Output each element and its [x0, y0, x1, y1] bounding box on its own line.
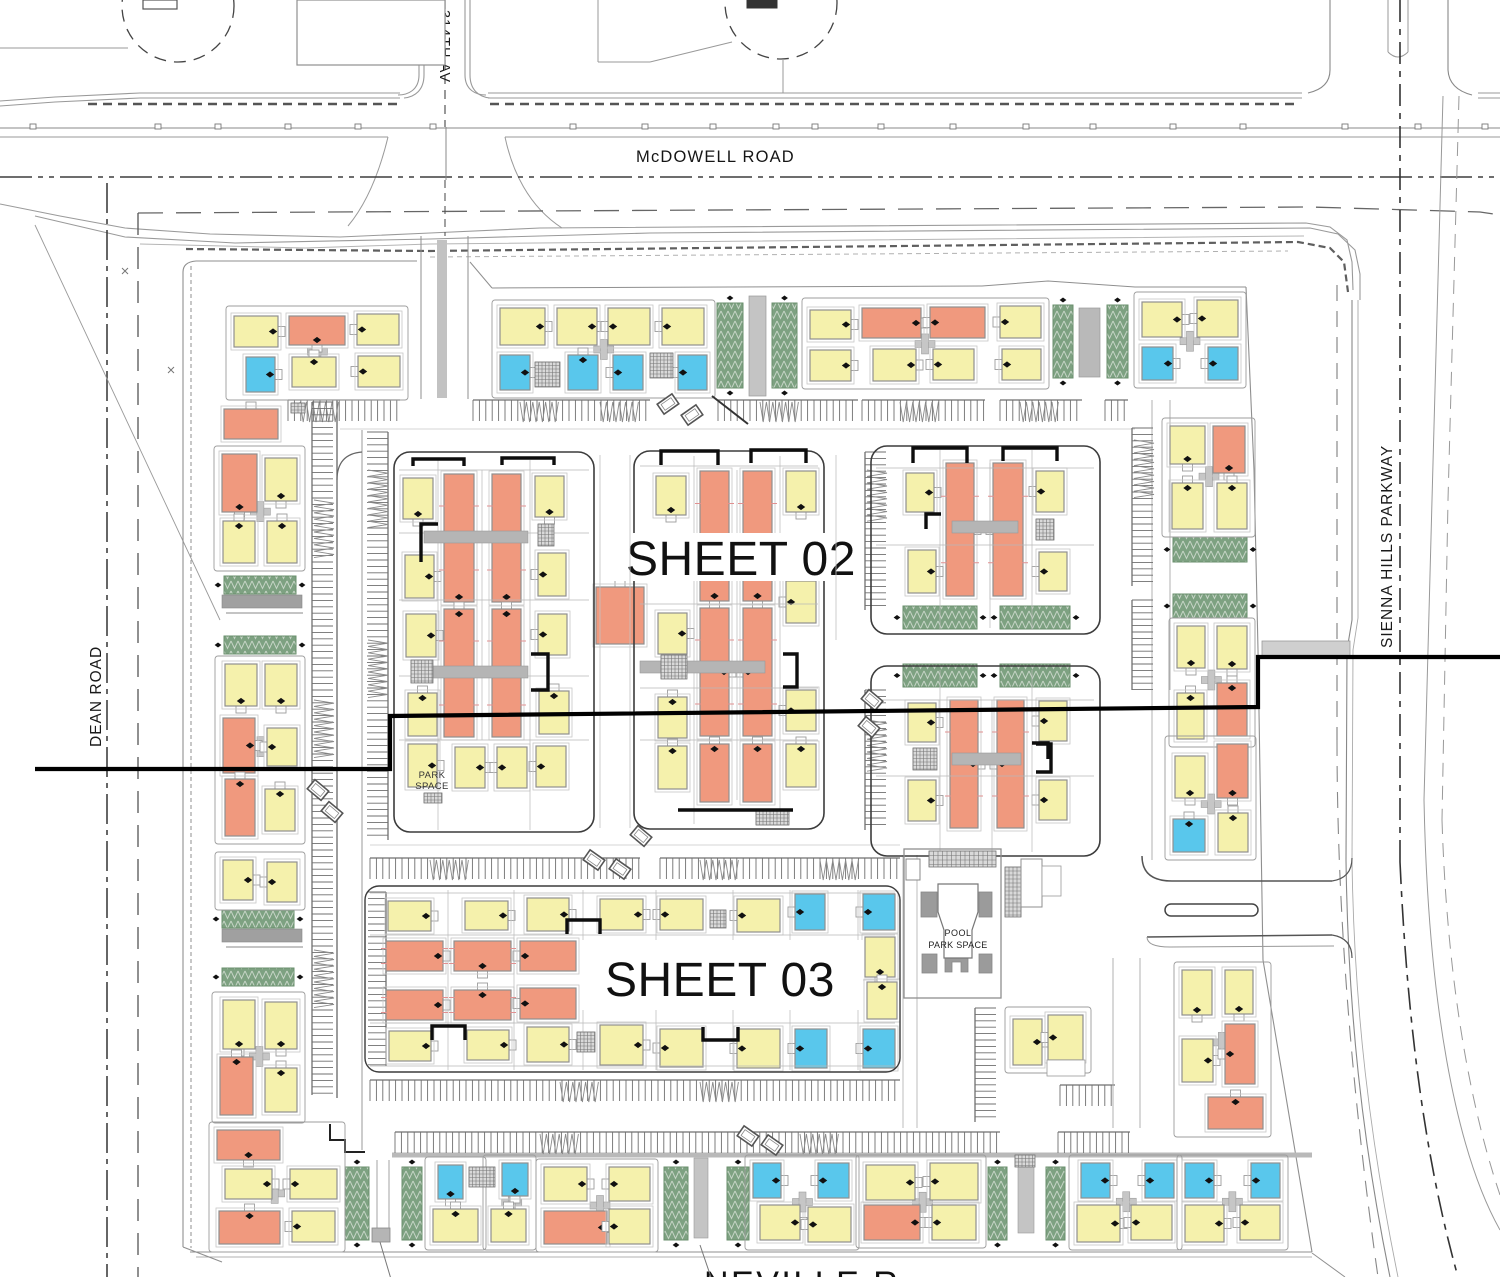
- svg-text:DEAN ROAD: DEAN ROAD: [88, 646, 105, 747]
- svg-text:SHEET 03: SHEET 03: [605, 954, 835, 1007]
- svg-text:NEVILLE R: NEVILLE R: [704, 1265, 900, 1277]
- svg-text:PARK SPACE: PARK SPACE: [928, 940, 987, 950]
- svg-text:SHEET 02: SHEET 02: [626, 533, 856, 586]
- svg-text:SIENNA HILLS PARKWAY: SIENNA HILLS PARKWAY: [1379, 445, 1396, 648]
- svg-text:PARK: PARK: [419, 770, 446, 781]
- svg-text:McDOWELL ROAD: McDOWELL ROAD: [636, 148, 795, 166]
- svg-text:POOL: POOL: [944, 928, 971, 938]
- svg-text:SPACE: SPACE: [415, 781, 449, 792]
